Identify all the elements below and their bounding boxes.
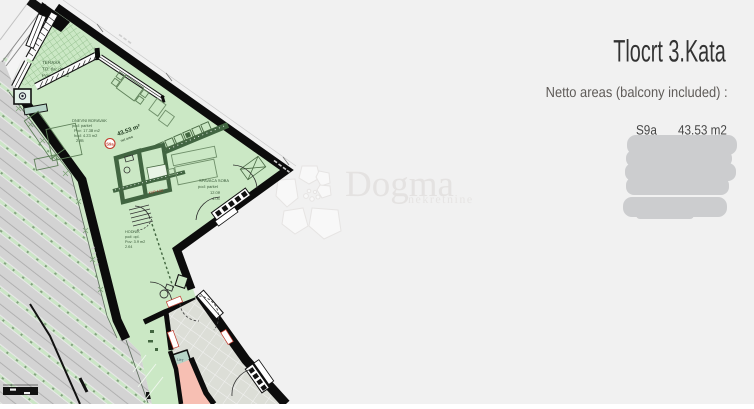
svg-text:Pov: 3.9 m2: Pov: 3.9 m2 — [125, 240, 145, 244]
svg-text:2.85: 2.85 — [76, 138, 85, 143]
svg-text:pod: opl.: pod: opl. — [125, 235, 140, 239]
svg-text:HODNIK: HODNIK — [125, 230, 140, 234]
svg-text:2.64: 2.64 — [125, 245, 132, 249]
svg-text:Tlocrt 3.Kata: Tlocrt 3.Kata — [613, 34, 726, 69]
svg-text:nekretnine: nekretnine — [408, 192, 474, 206]
svg-text:Netto areas (balcony included): Netto areas (balcony included) : — [546, 85, 728, 101]
svg-text:pod: parket: pod: parket — [198, 184, 219, 189]
svg-text:SPAVACA SOBA: SPAVACA SOBA — [199, 178, 229, 183]
svg-text:TERASA: TERASA — [42, 60, 61, 65]
svg-text:S9a: S9a — [106, 141, 114, 146]
svg-text:12.09: 12.09 — [210, 190, 221, 195]
